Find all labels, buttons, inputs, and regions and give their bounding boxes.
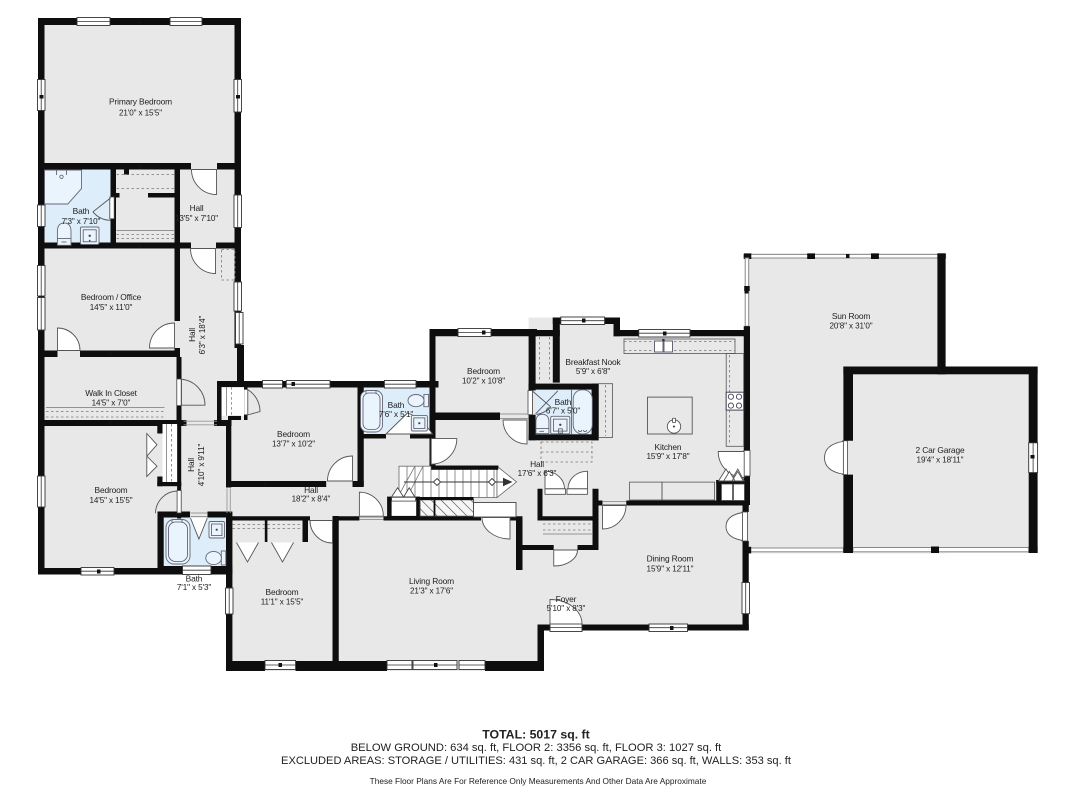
- svg-text:Hall: Hall: [304, 485, 318, 495]
- svg-text:13'5" x 7'10": 13'5" x 7'10": [175, 214, 218, 223]
- svg-text:These Floor Plans Are For Refe: These Floor Plans Are For Reference Only…: [370, 776, 707, 786]
- svg-text:TOTAL: 5017 sq. ft: TOTAL: 5017 sq. ft: [482, 728, 590, 742]
- svg-text:Living Room: Living Room: [409, 576, 454, 586]
- svg-text:17'6" x 6'3": 17'6" x 6'3": [518, 469, 557, 478]
- svg-text:20'8" x 31'0": 20'8" x 31'0": [829, 322, 872, 331]
- svg-text:21'0" x 15'5": 21'0" x 15'5": [119, 109, 162, 118]
- svg-text:5'9" x 6'8": 5'9" x 6'8": [576, 367, 611, 376]
- svg-text:Hall: Hall: [530, 459, 544, 469]
- svg-text:15'9" x 17'8": 15'9" x 17'8": [646, 452, 689, 461]
- svg-text:21'3" x 17'6": 21'3" x 17'6": [410, 587, 453, 596]
- svg-text:13'7" x 10'2": 13'7" x 10'2": [272, 440, 315, 449]
- svg-text:Foyer: Foyer: [556, 594, 577, 604]
- svg-text:BELOW GROUND: 634 sq. ft, FLOO: BELOW GROUND: 634 sq. ft, FLOOR 2: 3356 …: [351, 742, 722, 754]
- svg-text:Bedroom / Office: Bedroom / Office: [81, 292, 142, 302]
- svg-text:6'7" x 5'0": 6'7" x 5'0": [546, 407, 581, 416]
- svg-text:14'5" x 7'0": 14'5" x 7'0": [92, 399, 131, 408]
- svg-text:Hall: Hall: [187, 328, 197, 342]
- svg-text:2 Car Garage: 2 Car Garage: [916, 445, 965, 455]
- svg-text:18'2" x 8'4": 18'2" x 8'4": [292, 495, 331, 504]
- svg-text:7'1" x 5'3": 7'1" x 5'3": [177, 583, 212, 592]
- svg-text:19'4" x 18'11": 19'4" x 18'11": [917, 456, 964, 465]
- svg-text:EXCLUDED AREAS: STORAGE / UTIL: EXCLUDED AREAS: STORAGE / UTILITIES: 431…: [281, 755, 791, 767]
- svg-text:Sun Room: Sun Room: [832, 311, 871, 321]
- svg-text:4'10" x 9'11": 4'10" x 9'11": [197, 444, 206, 487]
- svg-text:11'1" x 15'5": 11'1" x 15'5": [261, 598, 304, 607]
- svg-text:Bedroom: Bedroom: [467, 366, 500, 376]
- svg-text:Bedroom: Bedroom: [95, 485, 128, 495]
- svg-text:Bedroom: Bedroom: [277, 429, 310, 439]
- svg-text:7'3" x 7'10": 7'3" x 7'10": [62, 217, 101, 226]
- svg-text:Walk In Closet: Walk In Closet: [85, 388, 137, 398]
- svg-text:7'6" x 5'1": 7'6" x 5'1": [379, 410, 414, 419]
- svg-text:Kitchen: Kitchen: [655, 442, 682, 452]
- svg-text:Bedroom: Bedroom: [266, 587, 299, 597]
- svg-text:Hall: Hall: [190, 203, 204, 213]
- svg-text:14'5" x 15'5": 14'5" x 15'5": [89, 496, 132, 505]
- svg-text:Breakfast Nook: Breakfast Nook: [565, 357, 621, 367]
- svg-text:Primary Bedroom: Primary Bedroom: [109, 97, 172, 107]
- svg-text:Bath: Bath: [388, 400, 405, 410]
- svg-text:5'10" x 8'3": 5'10" x 8'3": [547, 604, 586, 613]
- svg-text:10'2" x 10'8": 10'2" x 10'8": [462, 377, 505, 386]
- svg-text:14'5" x 11'0": 14'5" x 11'0": [90, 303, 133, 312]
- svg-text:Bath: Bath: [73, 206, 90, 216]
- svg-text:Bath: Bath: [186, 574, 203, 584]
- svg-text:Hall: Hall: [186, 458, 196, 472]
- svg-text:15'9" x 12'11": 15'9" x 12'11": [647, 565, 694, 574]
- svg-text:6'3" x 18'4": 6'3" x 18'4": [198, 315, 207, 354]
- svg-text:Bath: Bath: [555, 397, 572, 407]
- svg-text:Dining Room: Dining Room: [647, 554, 694, 564]
